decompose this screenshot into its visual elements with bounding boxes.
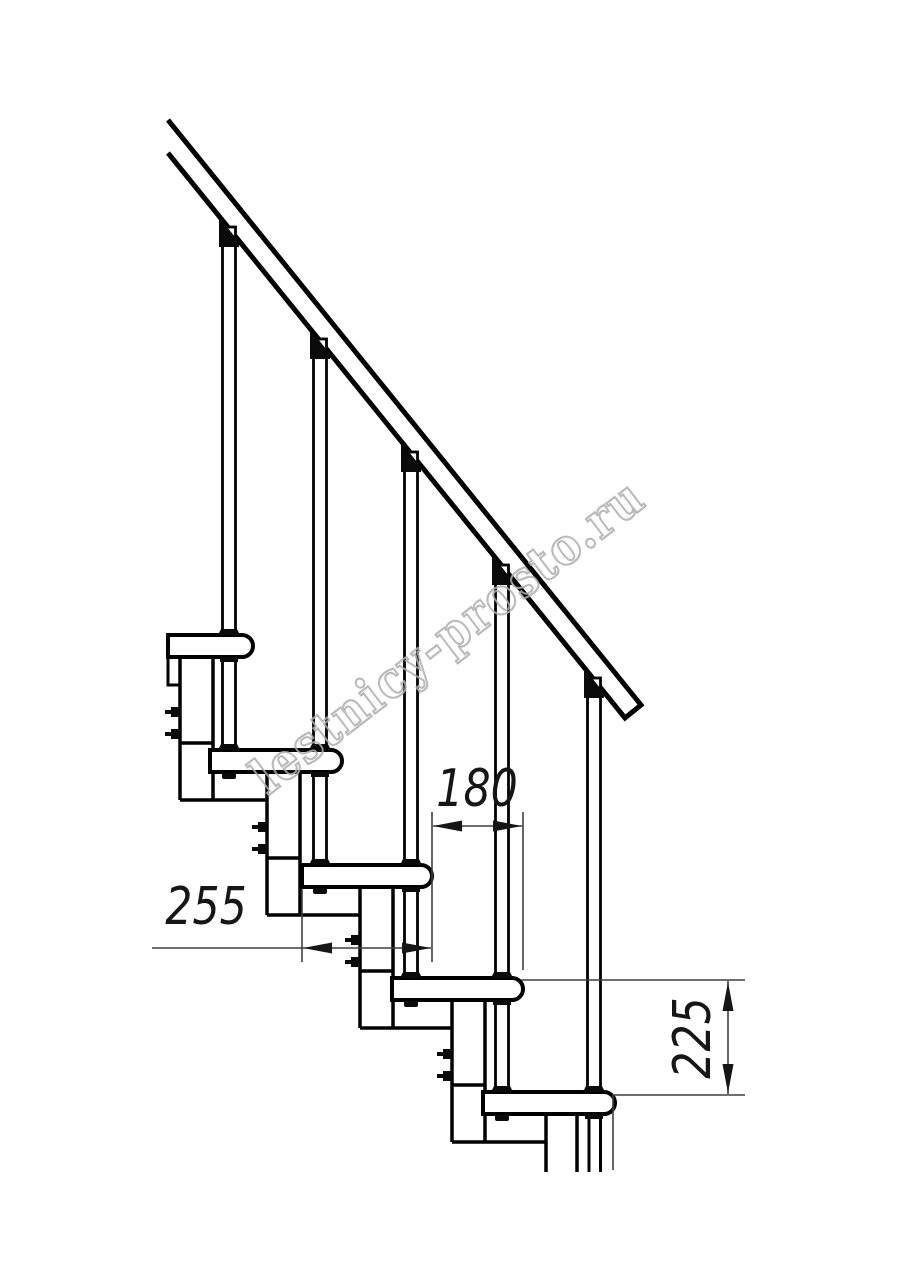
dimension-annotations: 180 255 225	[152, 759, 745, 1170]
bolt-icon	[171, 707, 180, 717]
foot-connector	[400, 859, 422, 865]
post-nut	[404, 1001, 418, 1007]
bolt-icon	[252, 847, 258, 851]
post-collar	[402, 887, 420, 892]
bolt-icon	[437, 1074, 443, 1078]
tread-1	[168, 635, 253, 657]
foot-connector	[583, 1086, 605, 1092]
post-nut	[495, 1115, 509, 1121]
dim-arrow-down-icon	[723, 1064, 734, 1093]
support-post-2	[314, 772, 327, 865]
bolt-icon	[345, 938, 351, 942]
bolt-icon	[443, 1071, 452, 1081]
foot-connector	[218, 629, 240, 635]
post-nut	[313, 888, 327, 894]
foot-connector	[400, 972, 422, 978]
stringer-module-5	[546, 1114, 577, 1172]
baluster-5	[588, 678, 601, 1092]
support-post-4	[496, 1000, 509, 1092]
bolt-icon	[258, 822, 267, 832]
technical-drawing-page: 180 255 225 lestnicy-pros	[0, 0, 914, 1280]
foot-connector	[218, 744, 240, 750]
tread-5	[483, 1092, 615, 1114]
foot-connector	[491, 972, 513, 978]
dim-arrow-left-icon	[433, 821, 462, 832]
dim-rise-label: 225	[663, 997, 723, 1078]
dim-run-label: 180	[436, 759, 517, 819]
bolt-icon	[443, 1049, 452, 1059]
bolt-icon	[165, 710, 171, 714]
bolt-icon	[171, 729, 180, 739]
bolt-icon	[351, 935, 360, 945]
support-post-5	[589, 1114, 601, 1172]
bolt-icon	[351, 957, 360, 967]
foot-connector	[491, 1086, 513, 1092]
support-post-1	[223, 657, 236, 750]
foot-connector	[309, 859, 331, 865]
staircase-drawing: 180 255 225 lestnicy-pros	[0, 0, 914, 1280]
dim-arrow-up-icon	[723, 982, 734, 1011]
support-post-3	[405, 887, 418, 978]
stringer-module-1-tab	[168, 655, 180, 685]
tread-4	[392, 978, 523, 1000]
dimension-depth: 255	[152, 877, 431, 962]
dimension-rise: 225	[521, 980, 745, 1170]
bolt-icon	[252, 825, 258, 829]
bolt-icon	[437, 1052, 443, 1056]
baluster-1	[223, 227, 236, 635]
bolt-icon	[165, 732, 171, 736]
post-collar	[493, 1000, 511, 1005]
bolt-icon	[258, 844, 267, 854]
post-collar	[585, 1114, 603, 1119]
post-collar	[220, 657, 238, 662]
baluster-2	[314, 339, 327, 750]
tread-3	[302, 865, 432, 887]
dim-arrow-left-icon	[303, 943, 332, 954]
bolt-icon	[345, 960, 351, 964]
post-nut	[222, 773, 236, 779]
dim-depth-label: 255	[165, 877, 246, 937]
